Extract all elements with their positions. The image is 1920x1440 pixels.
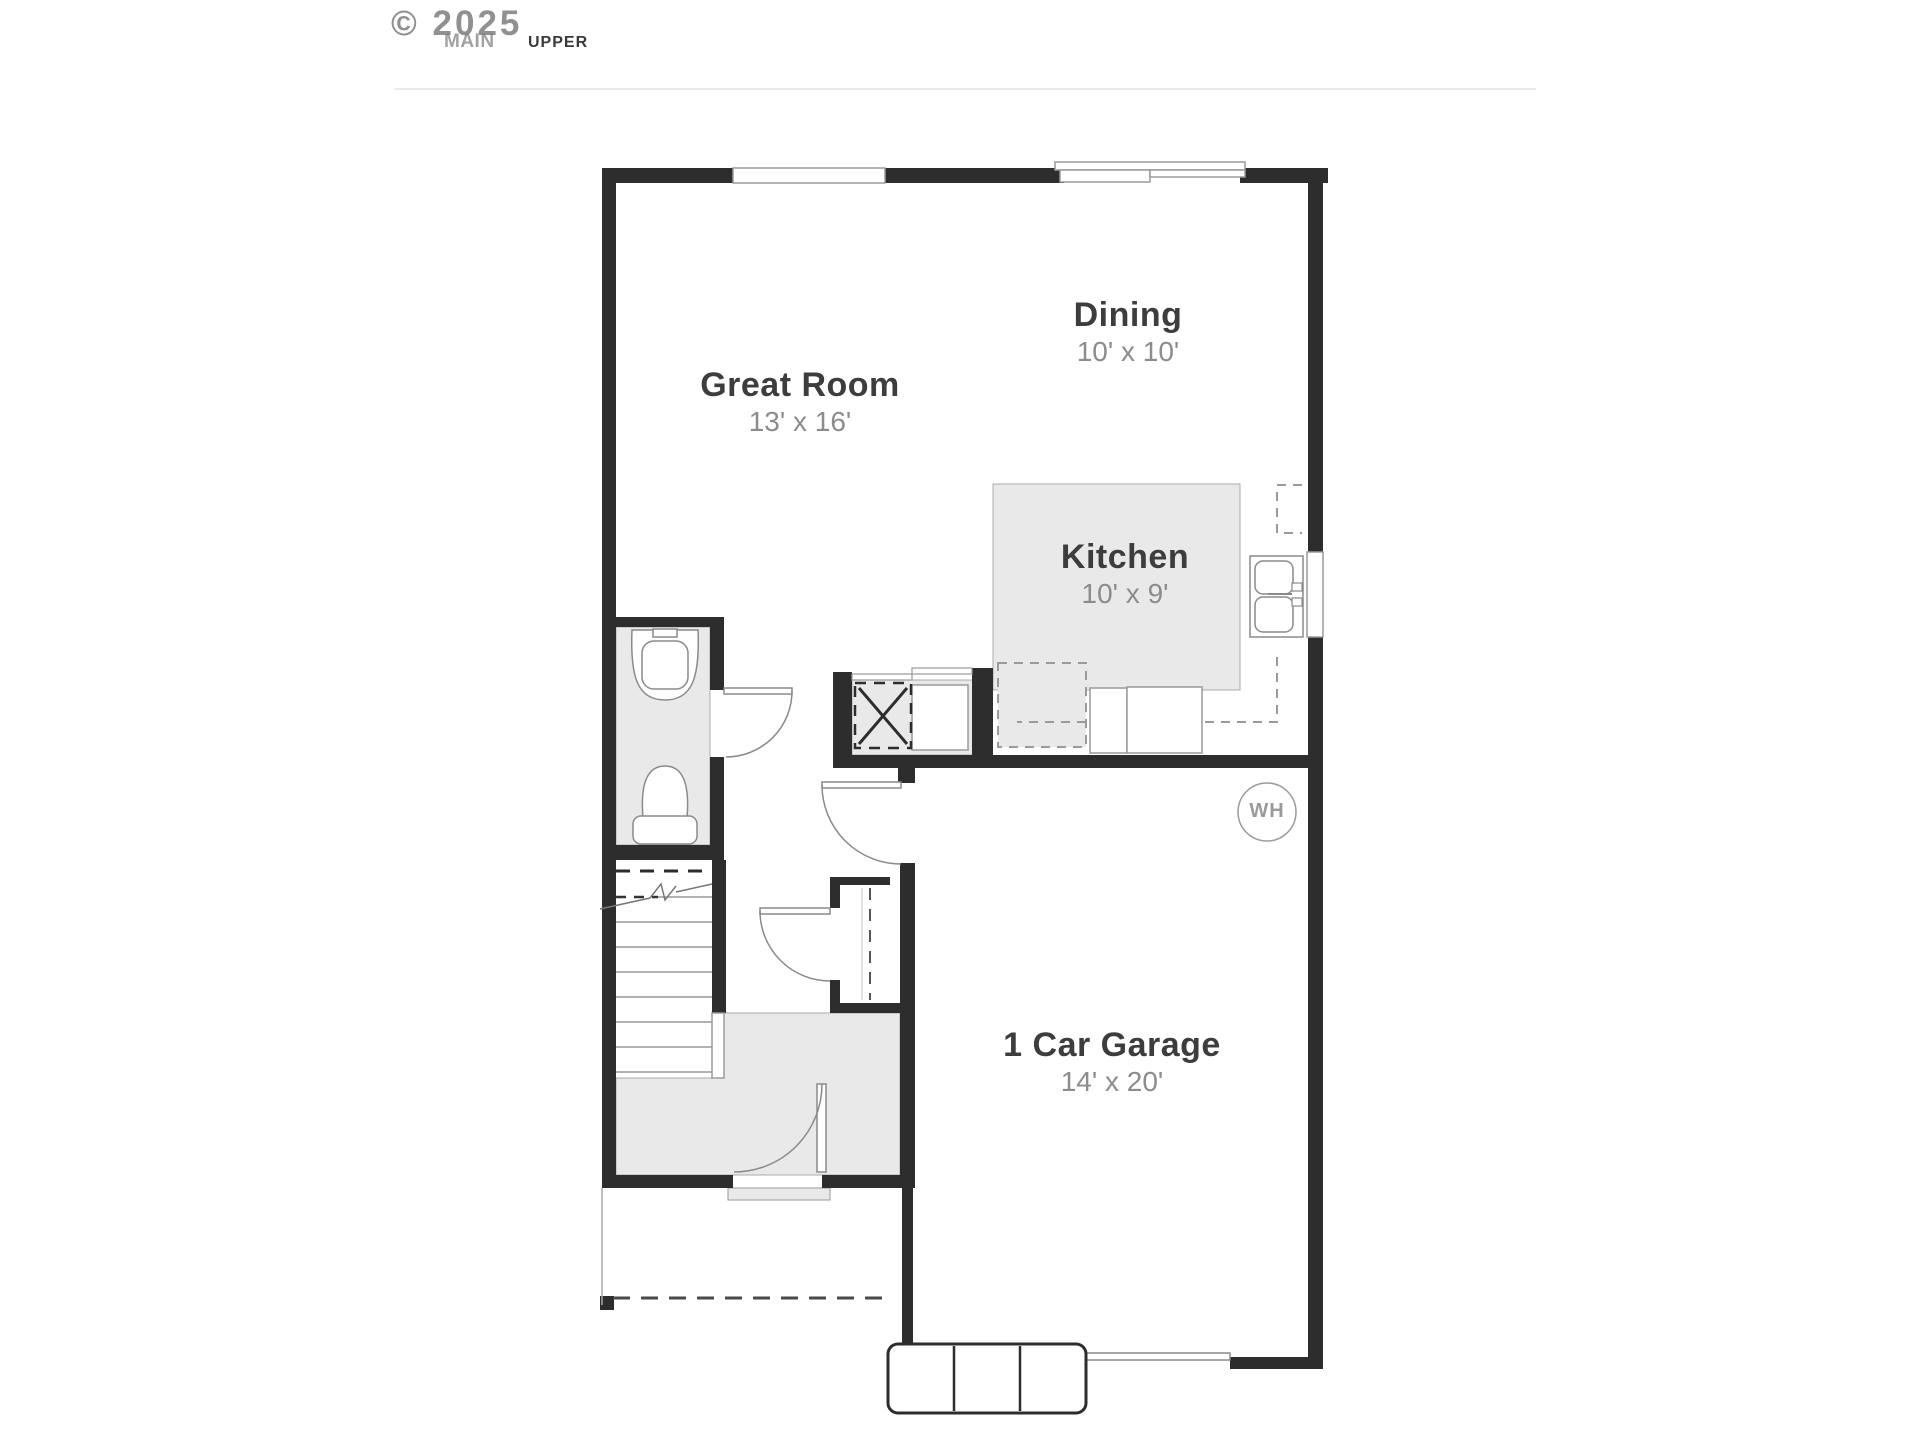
porch-outline: [602, 1188, 887, 1305]
coat-closet-rod: [862, 888, 870, 1000]
great-room-window: [733, 168, 885, 183]
tab-upper[interactable]: UPPER: [522, 33, 594, 53]
room-name: 1 Car Garage: [952, 1026, 1272, 1064]
closet-bifold-panel: [852, 674, 912, 680]
stair-railing: [712, 1013, 724, 1078]
dining-bay-window: [1055, 162, 1245, 182]
kitchen-sink-window: [1307, 552, 1323, 637]
room-label-garage: 1 Car Garage 14' x 20': [952, 1026, 1272, 1098]
floorplan-page: © 2025 MAIN UPPER: [0, 0, 1920, 1440]
room-dims: 14' x 20': [952, 1066, 1272, 1098]
mechanical-closet-fixtures: [855, 683, 968, 750]
stairs: [600, 871, 724, 1078]
room-dims: 10' x 10': [978, 336, 1278, 368]
closet-bifold-panel: [912, 668, 972, 674]
kitchen-counters: [1090, 687, 1202, 753]
garage-door: [888, 1344, 1230, 1413]
room-name: Kitchen: [975, 538, 1275, 576]
room-name: Great Room: [650, 366, 950, 404]
copyright-watermark: © 2025: [391, 4, 522, 44]
room-name: Dining: [978, 296, 1278, 334]
powder-room-door: [724, 688, 792, 757]
water-heater-label: WH: [1238, 800, 1296, 823]
room-label-great-room: Great Room 13' x 16': [650, 366, 950, 438]
room-label-dining: Dining 10' x 10': [978, 296, 1278, 368]
coat-closet-door: [760, 908, 830, 981]
room-dims: 13' x 16': [650, 406, 950, 438]
garage-entry-door: [822, 782, 901, 864]
room-dims: 10' x 9': [975, 578, 1275, 610]
floorplan-drawing: [0, 0, 1920, 1440]
room-label-kitchen: Kitchen 10' x 9': [975, 538, 1275, 610]
